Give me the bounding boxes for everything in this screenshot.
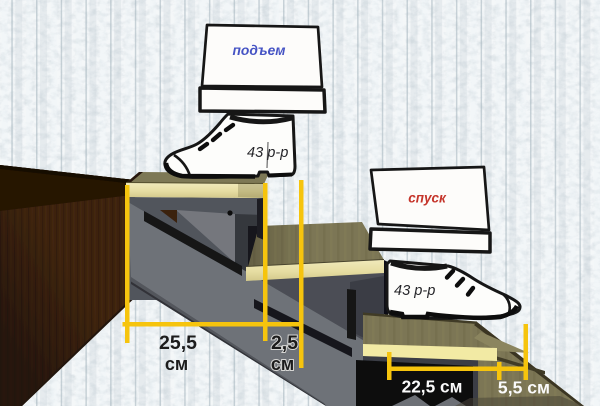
svg-text:2,5: 2,5 xyxy=(271,332,298,354)
svg-text:43 р-р: 43 р-р xyxy=(247,145,288,161)
svg-text:спуск: спуск xyxy=(408,191,447,206)
svg-text:подъем: подъем xyxy=(232,43,285,58)
svg-text:см: см xyxy=(165,354,188,374)
svg-text:25,5: 25,5 xyxy=(159,332,197,354)
svg-text:22,5 см: 22,5 см xyxy=(402,377,463,397)
svg-text:см: см xyxy=(271,354,294,374)
svg-text:43 р-р: 43 р-р xyxy=(394,283,435,299)
svg-text:5,5 см: 5,5 см xyxy=(498,378,550,398)
